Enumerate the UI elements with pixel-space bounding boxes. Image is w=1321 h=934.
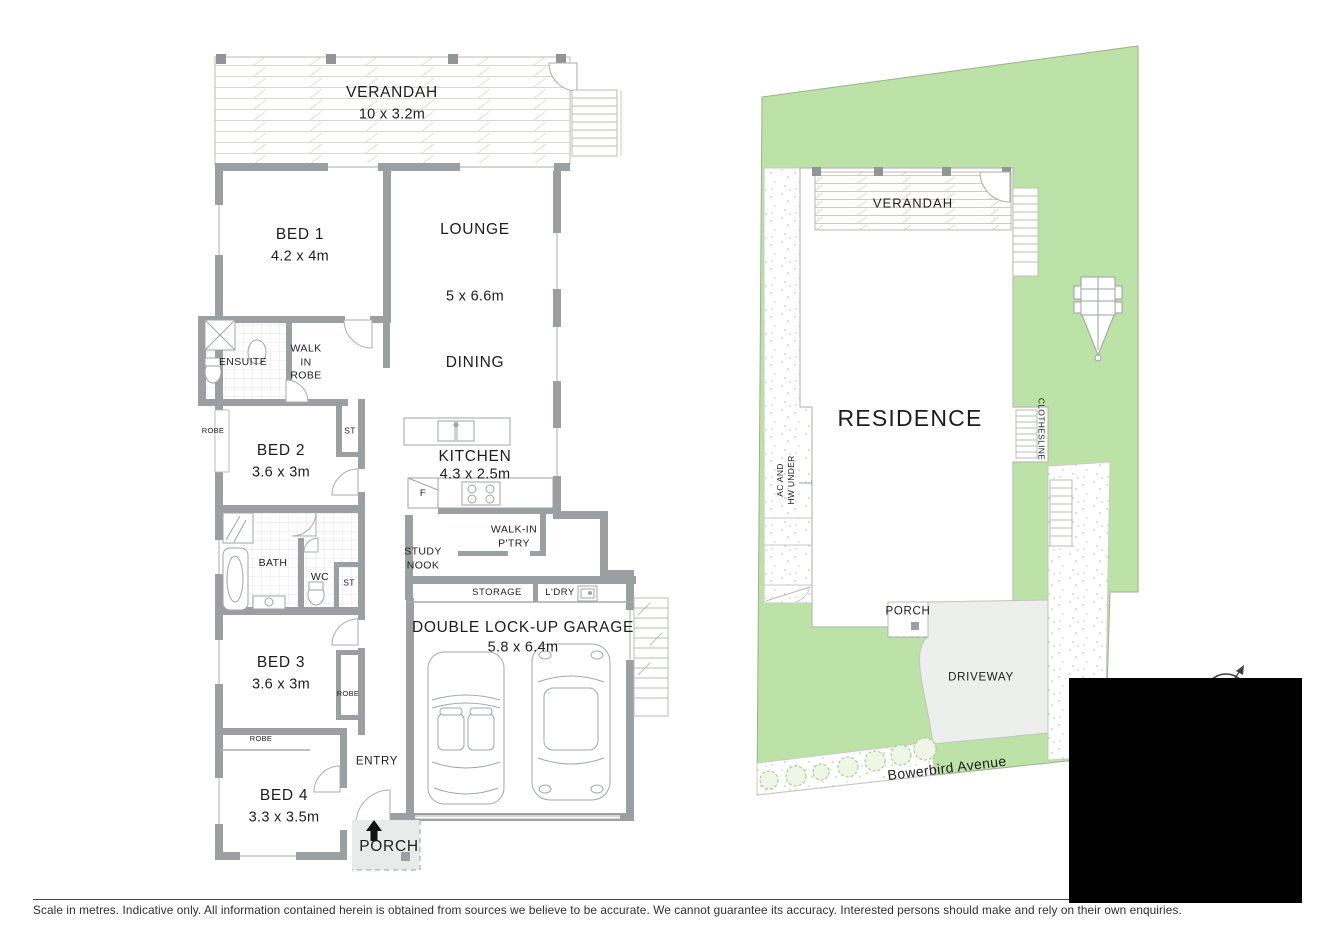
label-walk-in-robe: WALK IN ROBE xyxy=(290,343,321,384)
label-st-upper: ST xyxy=(344,425,355,436)
label-st-lower: ST xyxy=(343,577,354,588)
label-garage: DOUBLE LOCK-UP GARAGE xyxy=(412,618,634,638)
label-bed4: BED 4 xyxy=(260,786,308,806)
label-bed3: BED 3 xyxy=(257,653,305,673)
label-bed1: BED 1 xyxy=(276,225,324,245)
label-wc: WC xyxy=(311,571,329,585)
label-verandah: VERANDAH xyxy=(346,83,438,103)
car-icon xyxy=(532,644,610,800)
clothesline-stairs xyxy=(1016,410,1037,458)
label-entry: ENTRY xyxy=(356,755,398,770)
label-bed4-dims: 3.3 x 3.5m xyxy=(249,809,320,828)
label-storage: STORAGE xyxy=(472,587,522,599)
label-robe-bed4: ROBE xyxy=(250,734,272,744)
label-site-verandah: VERANDAH xyxy=(873,196,953,213)
label-dining: DINING xyxy=(446,353,504,373)
label-garage-dims: 5.8 x 6.4m xyxy=(488,639,559,658)
floorplan-page: VERANDAH 10 x 3.2m BED 1 4.2 x 4m LOUNGE… xyxy=(0,0,1321,934)
label-kitchen-dims: 4.3 x 2.5m xyxy=(440,466,511,485)
label-lounge-dims: 5 x 6.6m xyxy=(446,288,504,307)
label-study-nook: STUDY NOOK xyxy=(404,545,442,572)
label-residence: RESIDENCE xyxy=(838,404,983,434)
label-site-porch: PORCH xyxy=(885,605,930,620)
label-verandah-dims: 10 x 3.2m xyxy=(359,106,425,125)
garage-stairs xyxy=(634,598,668,716)
label-ensuite: ENSUITE xyxy=(219,356,267,370)
residence-footprint xyxy=(800,168,1048,637)
label-driveway: DRIVEWAY xyxy=(948,671,1014,686)
label-porch: PORCH xyxy=(359,837,418,857)
label-robe-bed3: ROBE xyxy=(337,689,359,699)
floor-plan xyxy=(198,54,668,870)
laundry-tub xyxy=(578,586,597,601)
car-icon xyxy=(428,652,504,804)
label-kitchen: KITCHEN xyxy=(439,447,512,467)
label-bed2-dims: 3.6 x 3m xyxy=(252,464,310,483)
label-robe-bed2: ROBE xyxy=(202,426,224,436)
label-walk-in-pantry: WALK-IN P'TRY xyxy=(491,523,537,550)
label-bed3-dims: 3.6 x 3m xyxy=(252,676,310,695)
redaction-box xyxy=(1069,678,1302,903)
rear-stairs xyxy=(1050,480,1072,546)
label-bed2: BED 2 xyxy=(257,441,305,461)
label-ac-hw: AC AND HW UNDER xyxy=(775,455,797,504)
label-bed1-dims: 4.2 x 4m xyxy=(271,248,329,267)
disclaimer-text: Scale in metres. Indicative only. All in… xyxy=(33,903,1295,917)
label-laundry: L'DRY xyxy=(545,587,574,599)
label-fridge: F xyxy=(420,488,426,500)
fp-verandah-stairs xyxy=(572,90,621,156)
label-bath: BATH xyxy=(259,557,288,571)
label-lounge: LOUNGE xyxy=(440,220,510,240)
site-stairs-top xyxy=(1013,188,1038,276)
label-clothesline: CLOTHESLINE xyxy=(1035,398,1046,460)
